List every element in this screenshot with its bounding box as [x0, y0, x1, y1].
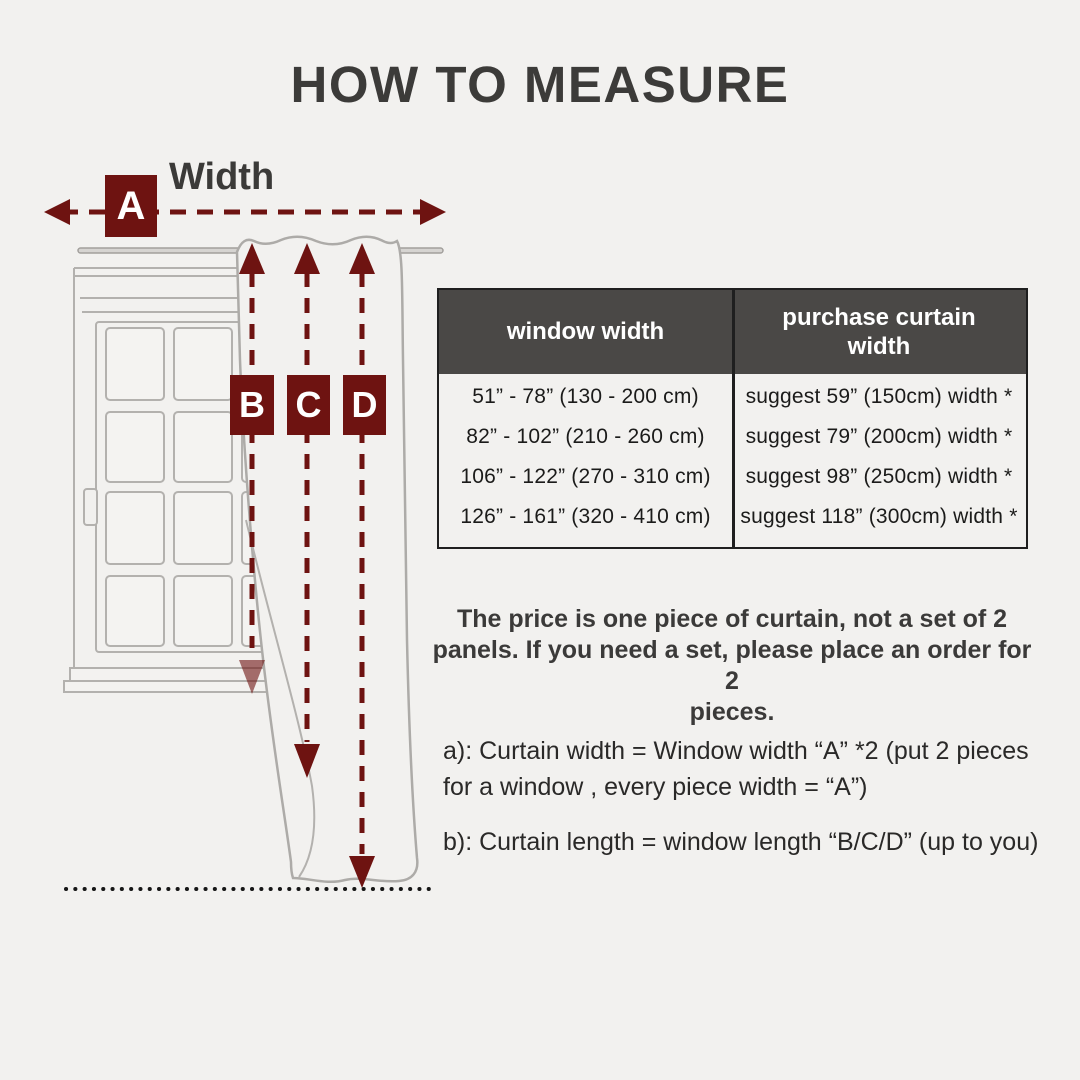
price-note: The price is one piece of curtain, not a… [425, 604, 1039, 728]
note-b: b): Curtain length = window length “B/C/… [443, 824, 1043, 860]
curtain [237, 237, 417, 882]
how-to-measure-infographic: HOW TO MEASURE [0, 0, 1080, 1080]
arrow-left-head [44, 199, 70, 225]
table-cell-window-width: 126” - 161” (320 - 410 cm) [439, 497, 732, 537]
marker-d: D [343, 375, 386, 435]
marker-a: A [105, 175, 157, 237]
size-table: window width purchase curtain width 51” … [437, 288, 1028, 549]
price-note-line: panels. If you need a set, please place … [433, 636, 1032, 695]
table-cell-suggest-width: suggest 118” (300cm) width * [732, 497, 1026, 537]
table-cell-window-width: 51” - 78” (130 - 200 cm) [439, 377, 732, 417]
width-label: Width [169, 156, 274, 199]
header-window-width: window width [439, 290, 732, 374]
table-cell-window-width: 106” - 122” (270 - 310 cm) [439, 457, 732, 497]
window-latch [84, 489, 97, 525]
price-note-line: The price is one piece of curtain, not a… [457, 605, 1007, 633]
marker-b: B [230, 375, 274, 435]
note-a-line: a): Curtain width = Window width “A” *2 … [443, 737, 1029, 765]
table-cell-suggest-width: suggest 59” (150cm) width * [732, 377, 1026, 417]
note-a-line: for a window , every piece width = “A”) [443, 773, 867, 801]
table-cell-window-width: 82” - 102” (210 - 260 cm) [439, 417, 732, 457]
table-cell-suggest-width: suggest 98” (250cm) width * [732, 457, 1026, 497]
table-cell-suggest-width: suggest 79” (200cm) width * [732, 417, 1026, 457]
price-note-line: pieces. [690, 698, 775, 726]
arrow-right-head [420, 199, 446, 225]
marker-c: C [287, 375, 330, 435]
note-a: a): Curtain width = Window width “A” *2 … [443, 733, 1043, 805]
table-column-divider [732, 290, 735, 547]
header-purchase-curtain-width: purchase curtain width [732, 290, 1026, 374]
